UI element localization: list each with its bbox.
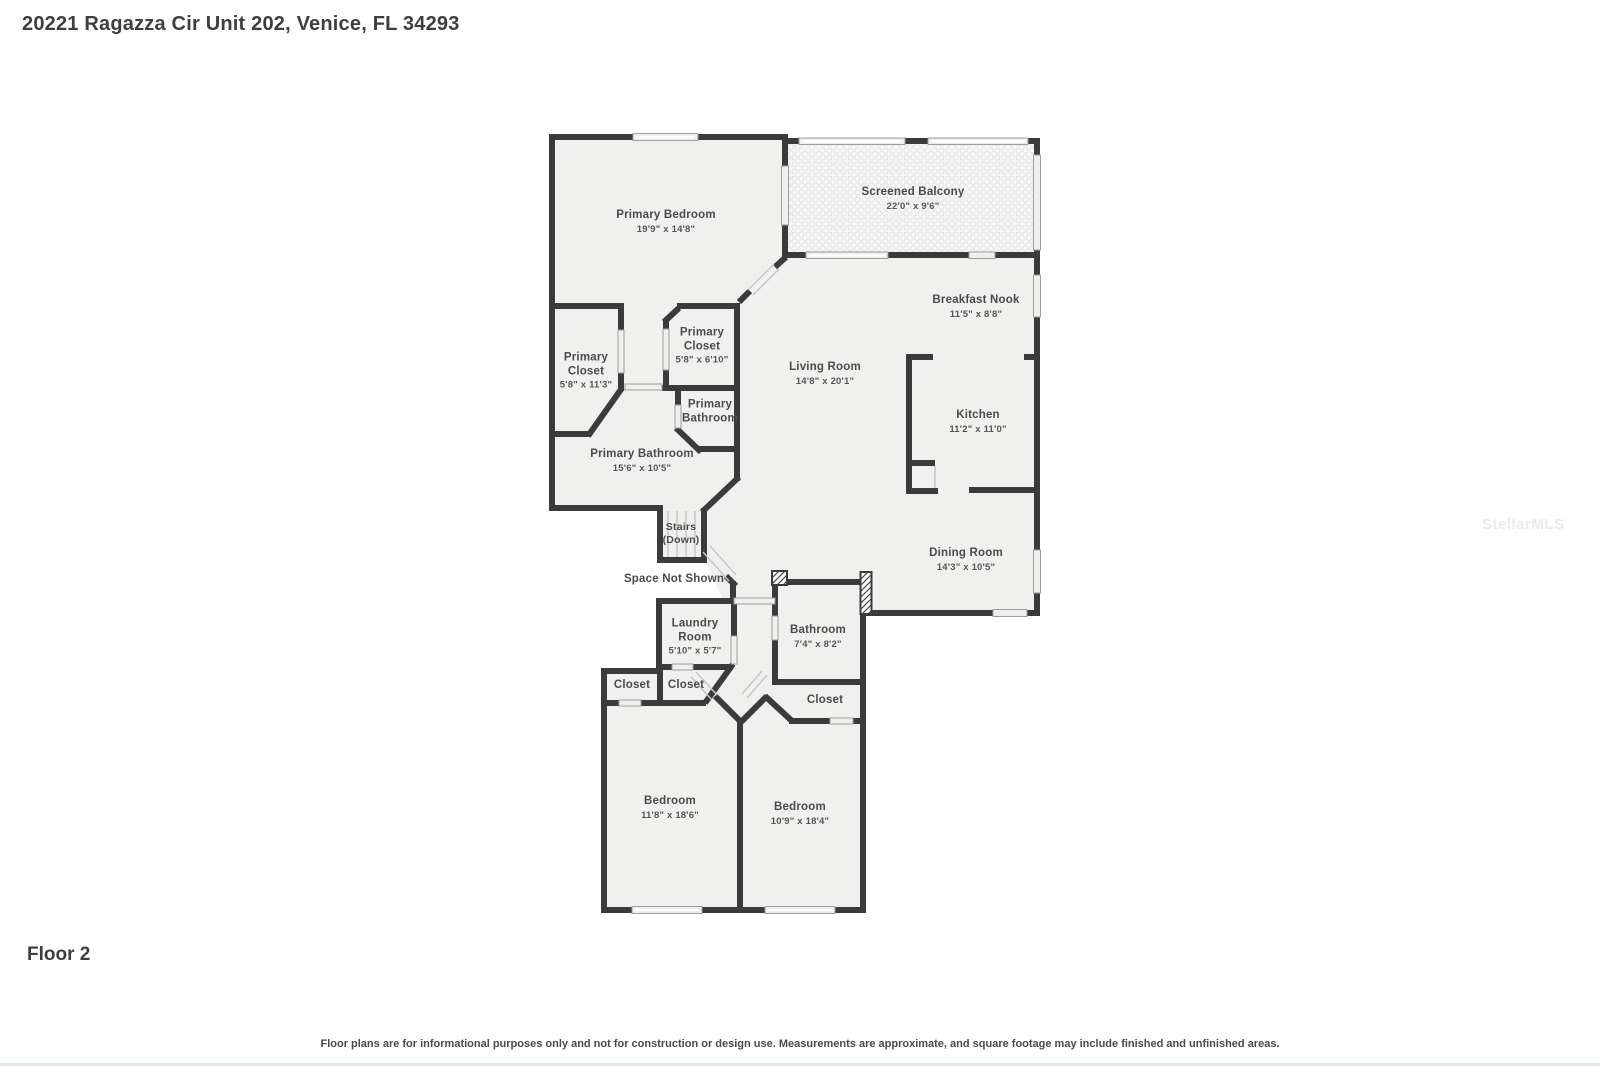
disclaimer-text: Floor plans are for informational purpos… [0,1038,1600,1050]
room-label-primary-bathroom-small: Primary Bathroom [670,398,750,425]
room-label-primary-bathroom-large: Primary Bathroom 15'6" x 10'5" [590,448,694,474]
room-label-primary-closet-small: Primary Closet 5'8" x 6'10" [670,326,734,365]
room-label-laundry-room: Laundry Room 5'10" x 5'7" [662,617,728,656]
room-label-living-room: Living Room 14'8" x 20'1" [789,361,861,387]
room-label-primary-closet-large: Primary Closet 5'8" x 11'3" [554,351,618,390]
room-label-bedroom-left: Bedroom 11'8" x 18'6" [641,795,699,821]
floor-plan-drawing [0,0,1600,1066]
room-label-closet-a: Closet [614,679,650,693]
room-label-primary-bedroom: Primary Bedroom 19'9" x 14'8" [616,209,716,235]
room-label-bathroom: Bathroom 7'4" x 8'2" [790,624,846,650]
room-label-screened-balcony: Screened Balcony 22'0" x 9'6" [862,186,965,212]
room-label-dining-room: Dining Room 14'3" x 10'5" [929,547,1003,573]
room-label-breakfast-nook: Breakfast Nook 11'5" x 8'8" [932,294,1019,320]
room-label-stairs: Stairs (Down) [663,521,700,547]
stellar-mls-watermark: StellarMLS [1482,516,1565,533]
room-label-bedroom-right: Bedroom 10'9" x 18'4" [771,801,829,827]
floor-label: Floor 2 [27,944,90,966]
room-label-kitchen: Kitchen 11'2" x 11'0" [949,409,1006,435]
room-label-closet-b: Closet [668,679,704,693]
floor-plan-page: 20221 Ragazza Cir Unit 202, Venice, FL 3… [0,0,1600,1066]
room-label-closet-c: Closet [807,694,843,708]
room-label-space-not-shown: Space Not Shown [624,573,724,587]
